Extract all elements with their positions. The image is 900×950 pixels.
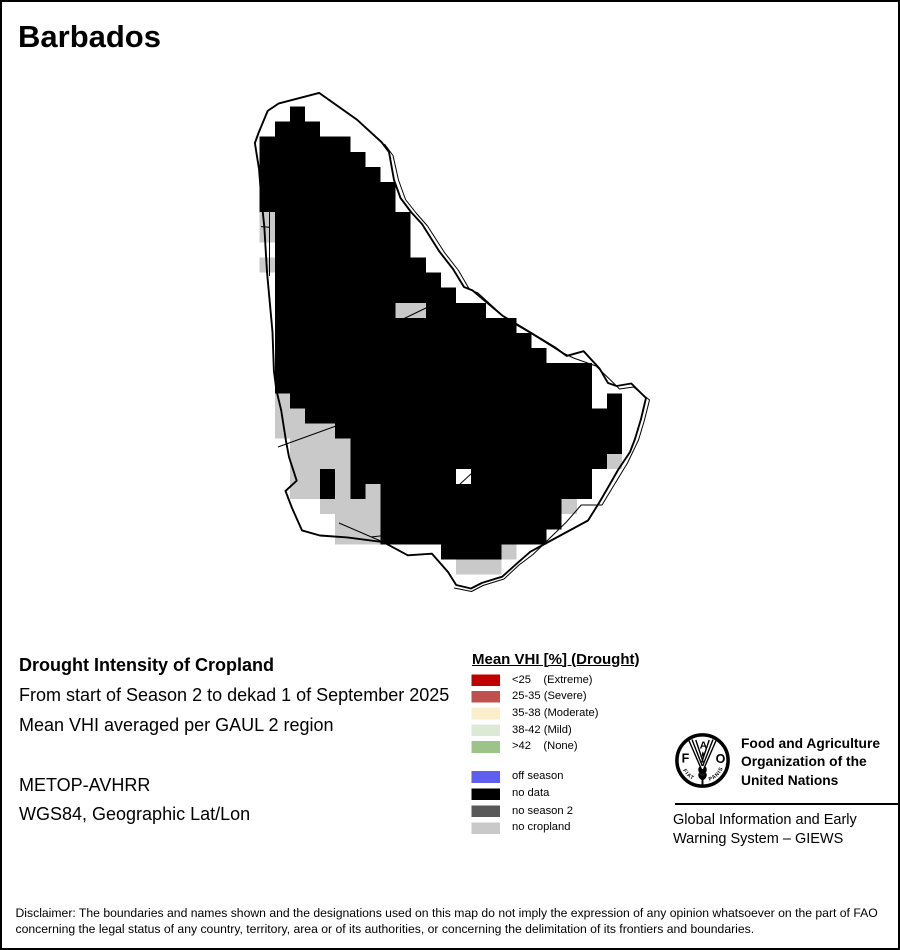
svg-text:F: F (682, 752, 690, 766)
svg-text:O: O (716, 752, 726, 766)
